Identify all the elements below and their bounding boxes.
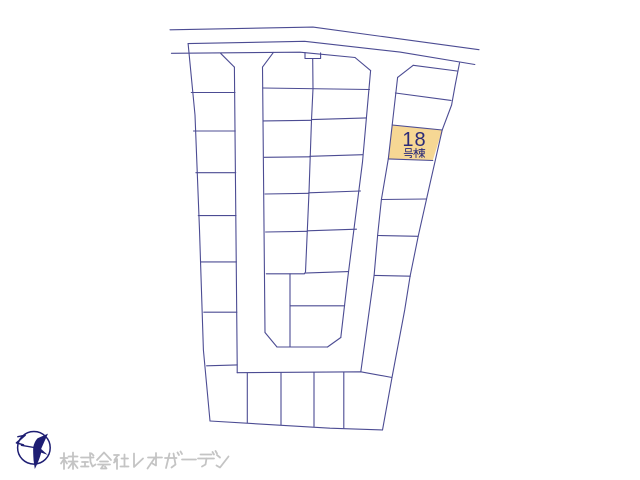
- svg-text:18: 18: [402, 129, 426, 151]
